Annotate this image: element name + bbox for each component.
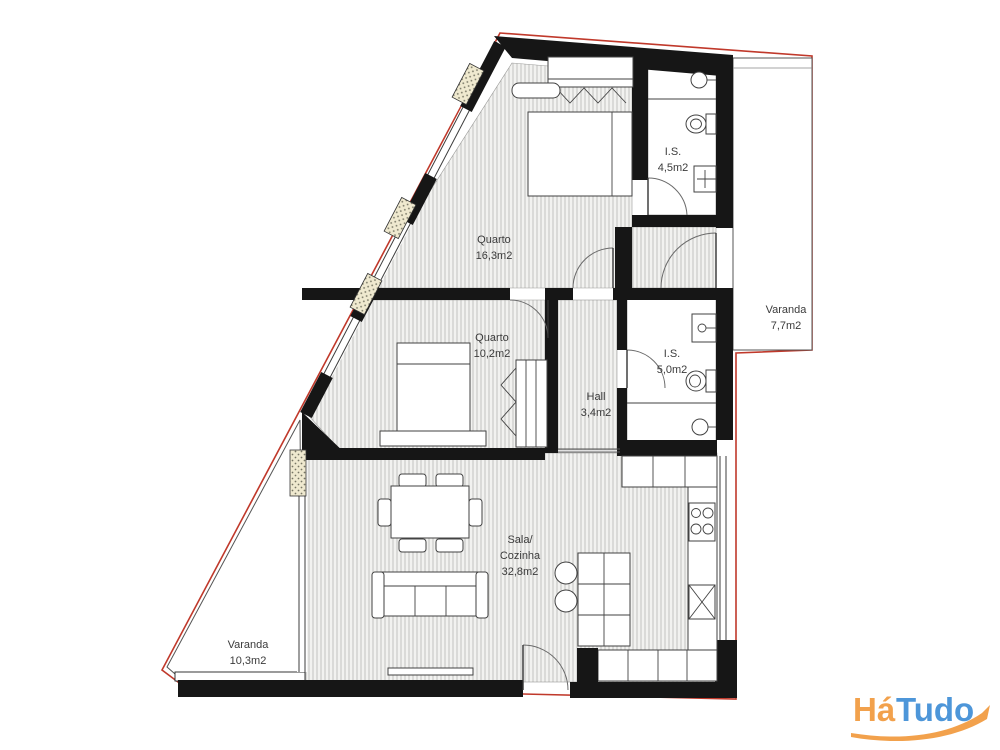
room-label-quarto-2: Quarto xyxy=(475,332,509,344)
hatudo-logo: Há Tudo xyxy=(851,691,990,741)
room-area-varanda-2: 10,3m2 xyxy=(230,655,267,667)
room-area-hall: 3,4m2 xyxy=(581,407,612,419)
kitchen-upper-cabinets xyxy=(622,456,717,487)
stool xyxy=(555,562,577,584)
wall-hall-is2-lower xyxy=(617,388,627,456)
wall-hall-is2-upper xyxy=(617,298,627,350)
wall-bath1-bottom xyxy=(632,215,716,227)
varanda-2-parapet xyxy=(175,672,305,681)
wall-mid-horizontal-c xyxy=(613,288,716,300)
wardrobe xyxy=(516,360,547,447)
dining-chair xyxy=(378,499,391,526)
room-area-sala: 32,8m2 xyxy=(502,566,539,578)
room-area-is-1: 4,5m2 xyxy=(658,162,689,174)
wall-bottom-slab-left xyxy=(178,680,523,697)
dining-chair xyxy=(399,539,426,552)
floor-plan-page: Quarto 16,3m2 I.S. 4,5m2 Varanda 7,7m2 Q… xyxy=(0,0,1000,750)
wall-right-upper xyxy=(716,55,733,228)
wall-kitchen-top xyxy=(617,440,717,456)
sofa-seat xyxy=(384,586,476,616)
toilet-cistern xyxy=(706,370,716,392)
toilet xyxy=(686,115,706,133)
bedside-table xyxy=(512,83,560,98)
room-label-is-1: I.S. xyxy=(665,146,682,158)
room-area-quarto-2: 10,2m2 xyxy=(474,348,511,360)
dining-chair xyxy=(399,474,426,487)
toilet-cistern xyxy=(706,114,716,134)
room-label-hall: Hall xyxy=(587,391,606,403)
facade-panel xyxy=(290,450,306,496)
wall-right-mid xyxy=(716,288,733,356)
wall-bottom-slab-right xyxy=(570,682,717,698)
room-label-varanda-2: Varanda xyxy=(228,639,270,651)
floor-corridor xyxy=(632,227,716,288)
tv xyxy=(388,668,473,675)
dining-table xyxy=(391,486,469,538)
laundry-sink xyxy=(692,419,708,435)
room-area-varanda-1: 7,7m2 xyxy=(771,320,802,332)
wall-bath1-left xyxy=(632,58,648,180)
sofa-arm xyxy=(476,572,488,618)
room-label-quarto-1: Quarto xyxy=(477,234,511,246)
stool xyxy=(555,590,577,612)
sofa-arm xyxy=(372,572,384,618)
room-area-is-2: 5,0m2 xyxy=(657,364,688,376)
sofa-back xyxy=(372,572,488,586)
dining-chair xyxy=(436,539,463,552)
wall-corridor-left xyxy=(615,227,632,288)
window-band xyxy=(717,456,729,640)
floor-plan-svg: Quarto 16,3m2 I.S. 4,5m2 Varanda 7,7m2 Q… xyxy=(0,0,1000,750)
logo-text-tudo: Tudo xyxy=(896,691,974,728)
bed-bench xyxy=(380,431,486,446)
bed xyxy=(528,112,632,196)
room-label-sala-2: Cozinha xyxy=(500,550,541,562)
dining-chair xyxy=(436,474,463,487)
wardrobe xyxy=(548,57,633,87)
wall-mid-horizontal-a xyxy=(302,288,510,300)
wall-right-bottom-corner xyxy=(715,640,737,698)
wall-stub xyxy=(577,648,598,682)
bed xyxy=(397,343,470,431)
room-label-sala: Sala/ xyxy=(507,534,533,546)
kitchen-lower-cabinets xyxy=(598,650,717,681)
dining-chair xyxy=(469,499,482,526)
washbasin xyxy=(691,72,707,88)
floor-hall xyxy=(558,300,617,450)
room-label-varanda-1: Varanda xyxy=(766,304,808,316)
toilet xyxy=(686,371,706,391)
logo-text-ha: Há xyxy=(853,691,896,728)
room-area-quarto-1: 16,3m2 xyxy=(476,250,513,262)
room-label-is-2: I.S. xyxy=(664,348,681,360)
wall-right-lower xyxy=(716,356,733,440)
